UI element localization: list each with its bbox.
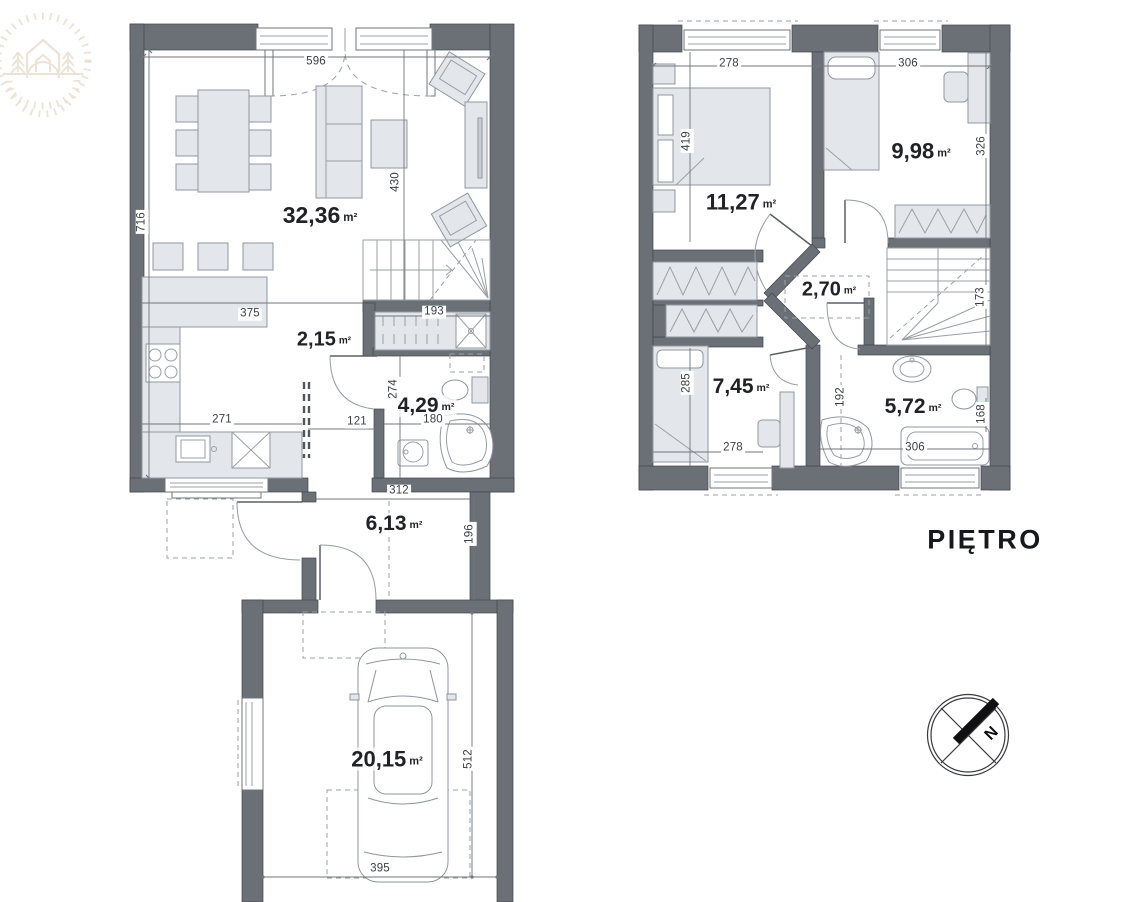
chair (249, 96, 271, 122)
armchair (429, 52, 485, 106)
room-area-label-bedroom1: 11,27m² (704, 190, 778, 213)
desk (780, 392, 794, 468)
room-area-label-bedroom2: 9,98m² (889, 139, 952, 162)
dim-counter-width: 271 (210, 414, 234, 427)
porch-slab (167, 499, 233, 558)
pillow (657, 350, 703, 368)
dim-living-width: 596 (304, 56, 328, 69)
dim-bedroom1-depth: 419 (681, 129, 694, 153)
room-area-label-garage: 20,15m² (349, 747, 425, 770)
dim-storage-width: 193 (422, 306, 446, 319)
tree-left-icon (11, 52, 25, 73)
room-area-label-entry: 6,13m² (364, 513, 425, 535)
dim-bedroom3-width: 278 (721, 442, 745, 455)
logo-watermark (0, 16, 88, 114)
dim-bath-mid: 192 (835, 385, 848, 409)
chair (249, 130, 271, 156)
desk (968, 53, 990, 123)
bar-stool (153, 243, 183, 270)
bedroom2-window (880, 30, 940, 50)
stairs-ground (363, 240, 490, 300)
dim-bedroom2-depth: 326 (976, 134, 989, 158)
chair (176, 130, 198, 156)
wardrobe (895, 205, 990, 238)
kitchen-counter-bottom (142, 432, 302, 478)
dim-bath-width: 306 (903, 442, 927, 455)
washer-dashed (450, 354, 484, 372)
pillow (828, 57, 875, 79)
dim-garage-width: 395 (368, 863, 392, 876)
dim-bedroom3-depth: 285 (681, 371, 694, 395)
entry-porch (167, 492, 389, 600)
bedroom3-window (710, 468, 772, 488)
dining-table (198, 90, 249, 192)
dim-bath-right: 168 (976, 402, 989, 426)
logo-rays-ring (0, 16, 88, 106)
kitchen-window-sill (172, 492, 261, 498)
chair (249, 164, 271, 190)
upper-floor (639, 21, 1010, 495)
dim-bedroom2-width: 306 (896, 58, 920, 71)
tv (478, 118, 482, 178)
tree-right-icon (61, 52, 75, 73)
bar-stool (198, 243, 228, 270)
sofa (316, 86, 362, 198)
room-area-label-upper-hall: 2,70m² (800, 280, 858, 301)
pillow (658, 140, 673, 182)
chamfer-wall (764, 293, 820, 349)
armchair (431, 193, 486, 247)
nightstand (653, 64, 675, 84)
dim-garage-depth: 512 (463, 747, 476, 771)
dim-bath-width: 180 (421, 414, 445, 427)
corner-bathtub (440, 414, 493, 472)
floorplan-canvas: 32,36m² 2,15m² 4,29m² 6,13m² 20,15m² 11,… (0, 0, 1134, 902)
room-area-label-living: 32,36m² (281, 203, 360, 227)
toilet-tank (472, 377, 488, 403)
kitchen-window (165, 478, 268, 492)
bedroom1-window (684, 30, 790, 50)
bar-stool (243, 243, 273, 270)
nightstand (653, 190, 675, 212)
desk-chair (944, 72, 968, 102)
room-area-label-upper-bathroom: 5,72m² (883, 396, 944, 418)
coffee-table (371, 120, 407, 168)
patio-window-left (256, 28, 332, 50)
floor-plan-drawing (0, 0, 1134, 902)
tv-cabinet (465, 102, 487, 188)
bedroom1-door (770, 214, 812, 246)
pillow (658, 95, 673, 135)
patio-window-right (356, 28, 432, 50)
dim-entry-depth: 196 (464, 522, 477, 546)
chair (176, 96, 198, 122)
room-area-label-bedroom3: 7,45m² (711, 376, 772, 398)
sun-icon (27, 62, 59, 78)
dim-living-depth: 430 (390, 170, 403, 194)
desk-chair (758, 420, 780, 447)
room-area-label-hall: 2,15m² (295, 330, 353, 351)
dim-stairs-width: 173 (975, 285, 988, 309)
kitchen (142, 243, 309, 478)
washbasin (893, 356, 931, 382)
dim-bedroom1-width: 278 (717, 58, 741, 71)
dim-kitchen-width: 375 (238, 308, 262, 321)
toilet (952, 389, 976, 409)
bathroom-window (901, 468, 979, 488)
chair (176, 164, 198, 190)
dining-set (176, 90, 271, 192)
closet (666, 305, 757, 337)
floor-title: PIĘTRO (927, 525, 1043, 556)
dim-living-left: 716 (136, 210, 149, 234)
dim-hall-door: 121 (345, 416, 369, 429)
dim-entry-width: 312 (387, 485, 411, 498)
dim-bath-depth: 274 (388, 377, 401, 401)
ground-floor (130, 24, 514, 902)
